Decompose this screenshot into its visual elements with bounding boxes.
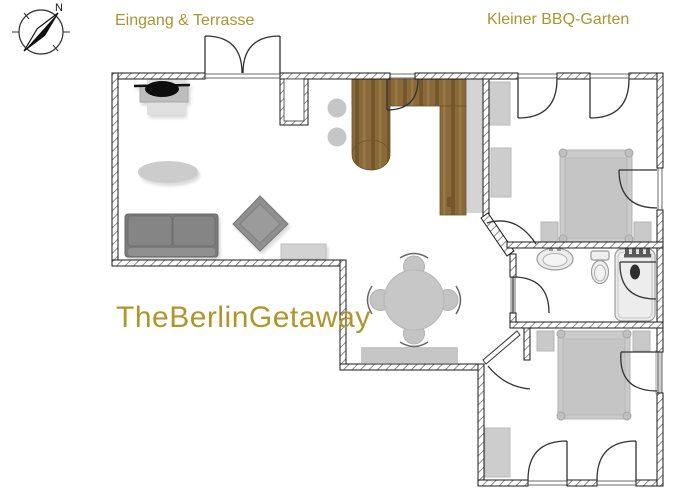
wardrobe [489, 82, 510, 125]
sideboard [281, 244, 326, 259]
bedroom1-garden-door [518, 79, 557, 118]
floor-plan-svg: N [0, 0, 700, 500]
sofa [125, 214, 218, 257]
bedroom1-garden-door [590, 79, 629, 118]
brand-watermark: TheBerlinGetaway [116, 301, 371, 335]
diagonal-wall [481, 213, 514, 256]
wall-stub-core [284, 79, 304, 121]
double-bed [559, 149, 633, 243]
bedroom1-furniture [489, 82, 651, 243]
wardrobe [491, 148, 511, 197]
bar-stool [328, 128, 347, 147]
tv-icon [145, 81, 179, 97]
nightstand [633, 331, 650, 351]
dining-sideboard [361, 347, 458, 363]
kitchen-side-panel [466, 79, 484, 213]
entrance-terrace-label: Eingang & Terrasse [115, 12, 254, 30]
double-bed [557, 330, 631, 420]
floor-plan-page: N Eingang & Terrasse Kleiner BBQ-Garten … [0, 0, 700, 500]
compass-north-arrow-icon: N [12, 2, 70, 54]
dining-area-furniture [361, 254, 461, 364]
bathroom-fixtures [537, 246, 656, 321]
rug [138, 161, 198, 183]
bar-stool [328, 99, 347, 118]
nightstand [541, 222, 558, 242]
bathroom-door [513, 277, 549, 313]
compass-north-label: N [55, 2, 63, 14]
nightstand [634, 222, 651, 242]
shower-head [630, 265, 640, 280]
kitchen-knob [447, 197, 453, 207]
shower [615, 249, 656, 321]
wardrobe [485, 428, 510, 477]
nightstand [537, 331, 554, 351]
bedroom2-garden-door [528, 441, 567, 480]
dining-table [384, 270, 444, 330]
bedroom2-entry-door [483, 331, 530, 389]
kitchen-counter-round-end [352, 140, 390, 170]
toilet [591, 251, 609, 284]
washbasin [537, 246, 573, 270]
bedroom2-garden-door [597, 441, 636, 480]
armchair [233, 196, 288, 251]
bbq-garden-label: Kleiner BBQ-Garten [487, 11, 629, 29]
double-entrance-door [205, 36, 280, 73]
kitchen-counter [328, 79, 485, 215]
